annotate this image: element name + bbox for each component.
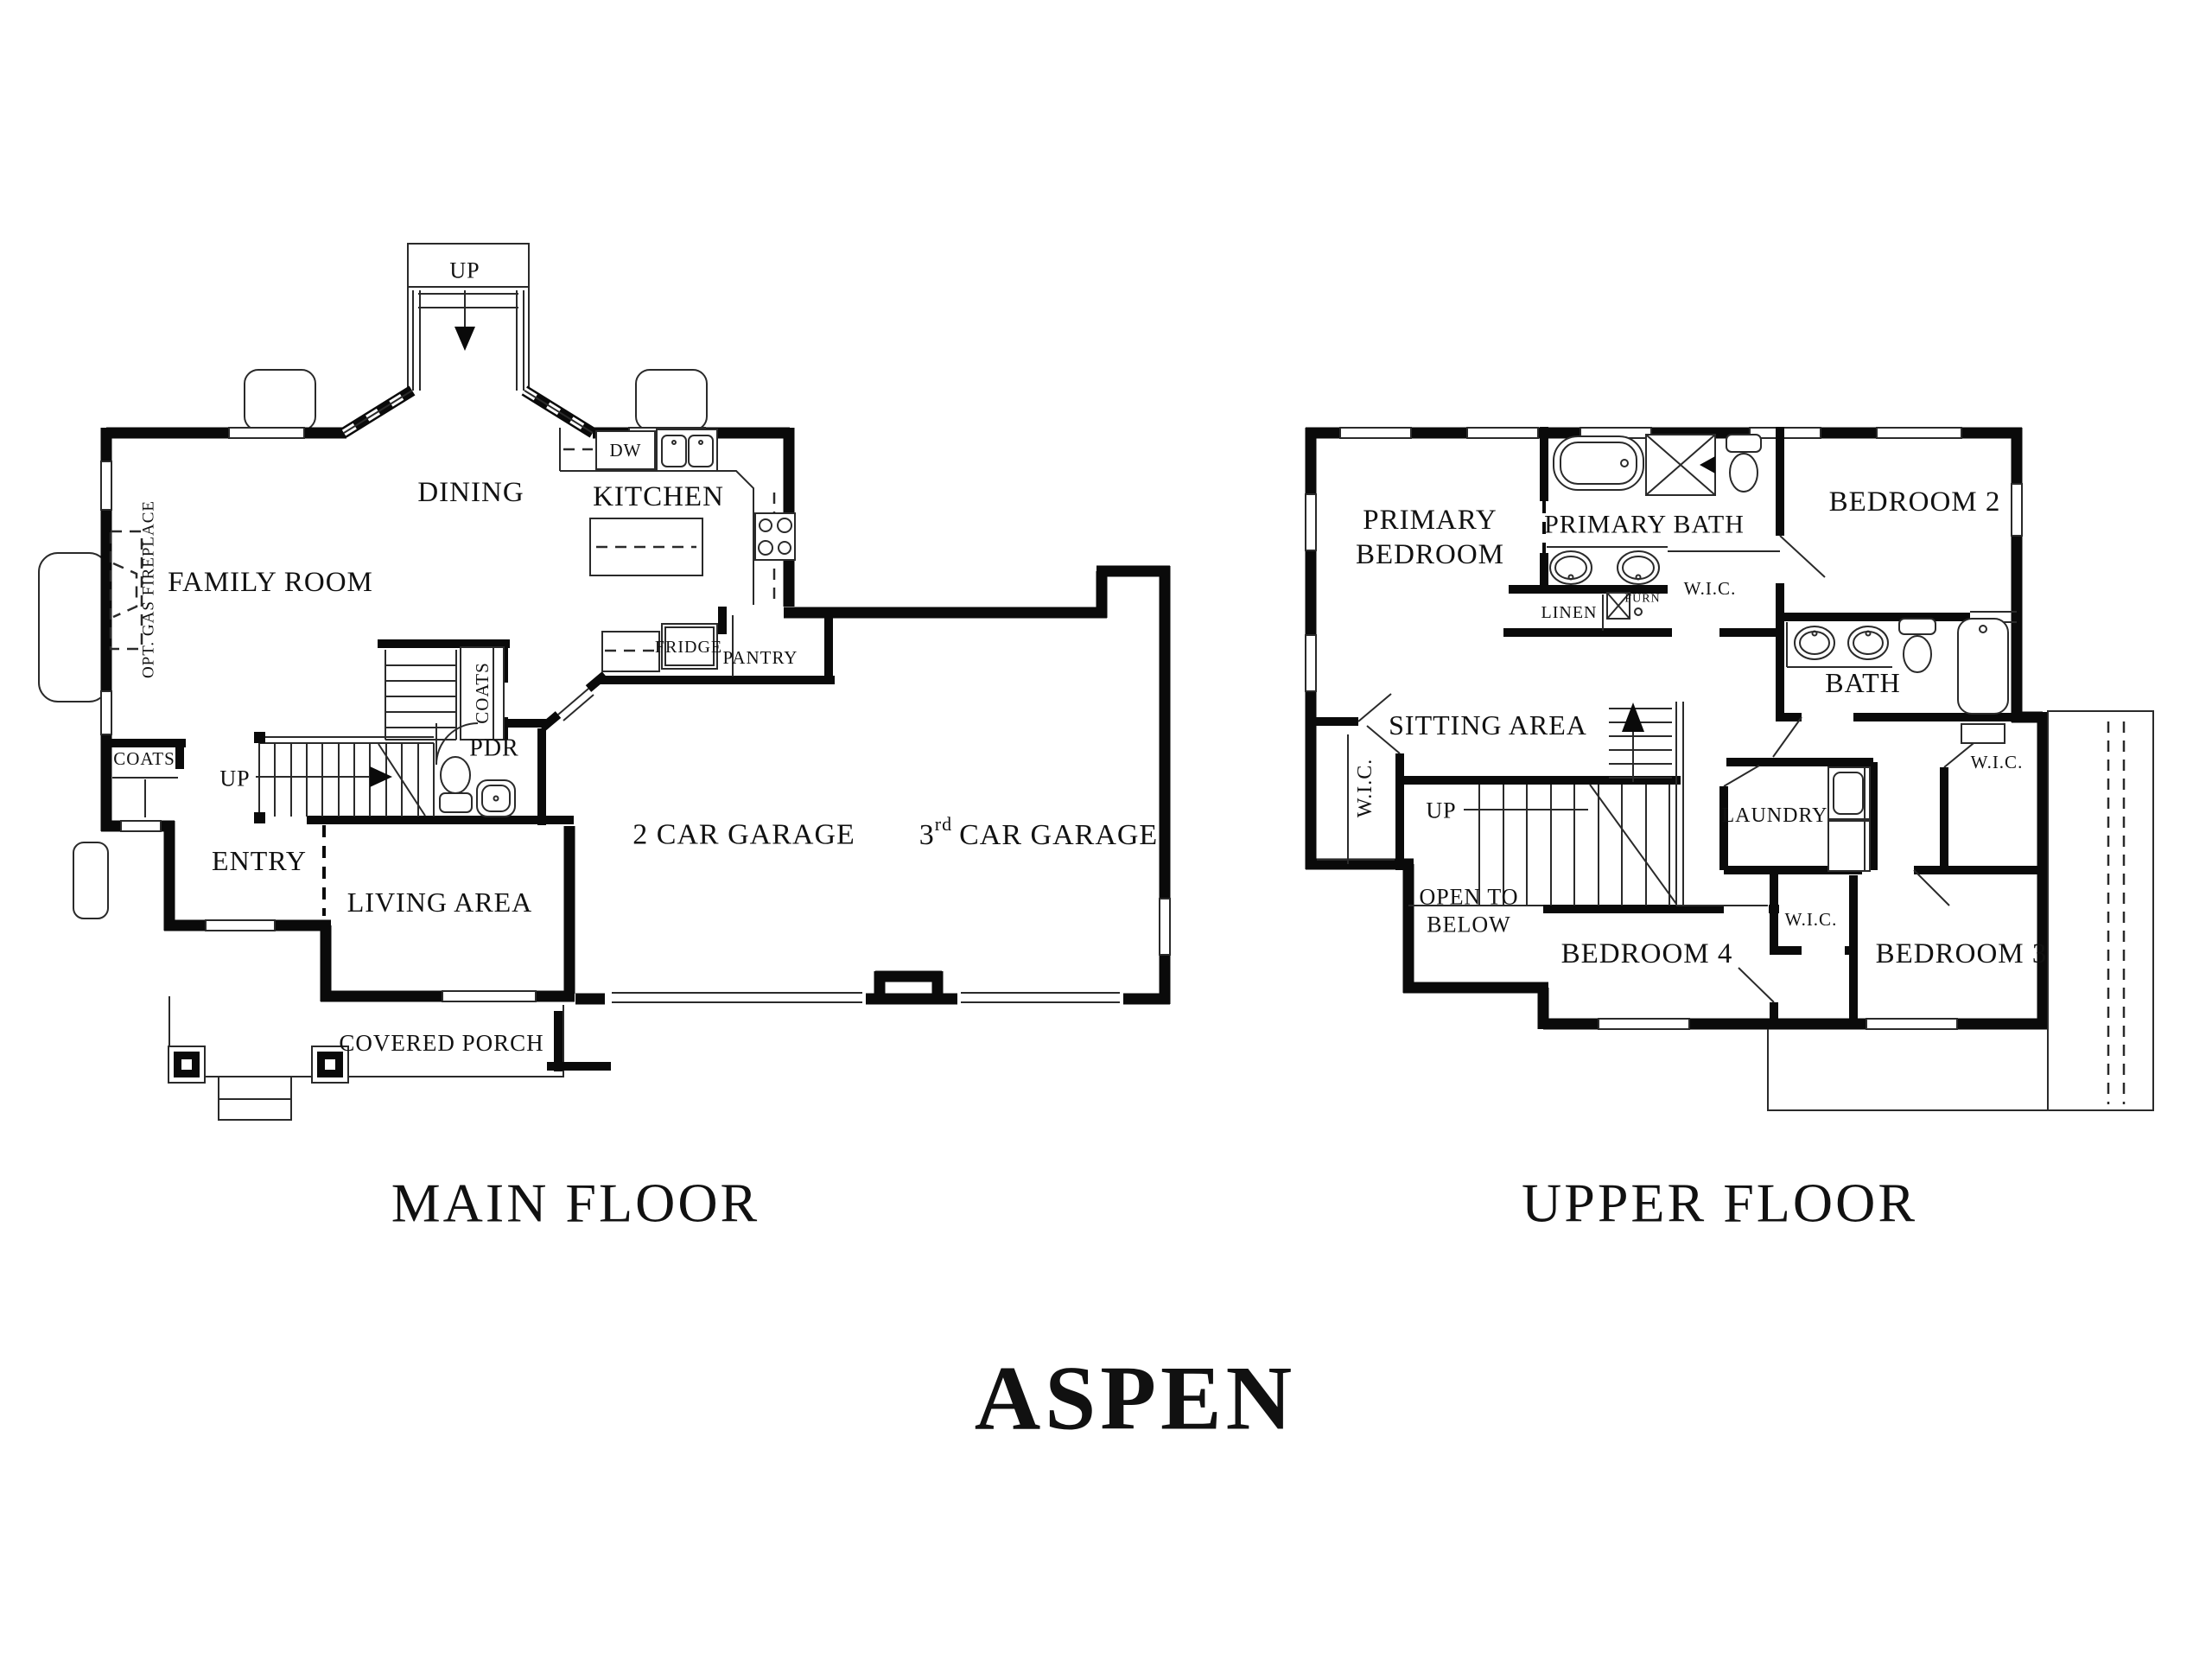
label-open-to-below-2: BELOW	[1427, 912, 1510, 938]
room-label-dining: DINING	[417, 477, 524, 508]
room-label-sitting-area: SITTING AREA	[1389, 709, 1587, 741]
shower	[1646, 435, 1715, 495]
room-label-primary-bedroom-1: PRIMARY	[1363, 505, 1497, 536]
toilet	[1899, 619, 1935, 634]
label-fireplace: OPT. GAS FIREPLACE	[140, 500, 158, 678]
label-open-to-below-1: OPEN TO	[1419, 885, 1518, 910]
windows	[101, 428, 1170, 1001]
covered-porch	[168, 996, 611, 1120]
room-label-entry: ENTRY	[212, 845, 307, 876]
label-wic-primary: W.I.C.	[1684, 578, 1737, 599]
room-label-kitchen: KITCHEN	[593, 481, 724, 512]
fireplace-bump	[39, 553, 108, 702]
fireplace	[111, 531, 142, 649]
room-label-3rd-car-garage: 3rdCAR GARAGE	[919, 813, 1158, 851]
label-fridge: FRIDGE	[655, 638, 722, 657]
room-label-bedroom-4: BEDROOM 4	[1561, 938, 1733, 969]
porch-post	[168, 1046, 205, 1083]
stair-down-arrow	[454, 327, 475, 351]
room-label-family-room: FAMILY ROOM	[168, 567, 373, 598]
room-label-2-car-garage: 2 CAR GARAGE	[632, 819, 855, 851]
porch-steps	[219, 1077, 291, 1120]
room-label-up-bay: UP	[449, 258, 480, 283]
room-label-bedroom-2: BEDROOM 2	[1829, 486, 2001, 518]
door-leaves	[1317, 536, 2005, 1002]
main-floor: UP DINING KITCHEN DW FAMILY ROOM OPT. GA…	[39, 244, 1170, 1234]
exterior-wall	[101, 428, 1170, 1004]
label-dishwasher: DW	[610, 440, 642, 461]
garage3-number: 3	[919, 819, 935, 851]
up-arrow	[1622, 702, 1644, 732]
room-label-living-area: LIVING AREA	[347, 887, 533, 918]
label-linen: LINEN	[1541, 603, 1598, 622]
upper-floor: PRIMARY BEDROOM PRIMARY BATH LINEN FURN …	[1306, 427, 2153, 1234]
room-label-bedroom-3: BEDROOM 3	[1876, 938, 2048, 969]
vanity	[1547, 547, 1668, 584]
label-pantry: PANTRY	[723, 647, 798, 668]
label-wic-mid: W.I.C.	[1785, 909, 1838, 930]
label-wic-left: W.I.C.	[1354, 759, 1376, 817]
room-label-bath: BATH	[1825, 667, 1901, 698]
label-coats-closet: COATS	[113, 748, 175, 769]
label-up-stairs: UP	[1426, 798, 1456, 823]
room-label-primary-bath: PRIMARY BATH	[1544, 511, 1745, 539]
bath-fixtures	[1787, 619, 2008, 714]
label-furn: FURN	[1624, 593, 1660, 606]
main-floor-title: MAIN FLOOR	[391, 1173, 760, 1234]
label-laundry: LAUNDRY	[1721, 804, 1827, 827]
plan-name-title: ASPEN	[975, 1348, 1297, 1449]
upper-floor-title: UPPER FLOOR	[1522, 1173, 1917, 1234]
window-bay	[245, 370, 315, 430]
stove	[755, 513, 795, 560]
toilet	[1726, 435, 1761, 492]
label-wic-right: W.I.C.	[1971, 752, 2024, 772]
garage-entry-door	[558, 689, 594, 721]
bay-windows	[344, 391, 593, 433]
window-bump	[73, 842, 108, 918]
laundry-fixtures	[1828, 767, 1870, 871]
coats-closet-lines	[112, 778, 178, 817]
kitchen-island	[590, 518, 702, 575]
garage3-superscript: rd	[935, 813, 952, 835]
window-bay	[636, 370, 707, 430]
floor-plan-page: UP DINING KITCHEN DW FAMILY ROOM OPT. GA…	[0, 0, 2212, 1659]
up-arrow	[370, 766, 392, 787]
kitchen-sink	[657, 429, 717, 471]
floor-plan-canvas: UP DINING KITCHEN DW FAMILY ROOM OPT. GA…	[0, 0, 2212, 1659]
room-label-covered-porch: COVERED PORCH	[339, 1030, 543, 1056]
room-label-primary-bedroom-2: BEDROOM	[1356, 539, 1504, 570]
room-label-pdr: PDR	[469, 735, 518, 762]
garage3-rest: CAR GARAGE	[959, 819, 1158, 851]
label-up-stairs: UP	[219, 766, 250, 791]
label-coats-stairs: COATS	[472, 662, 493, 724]
